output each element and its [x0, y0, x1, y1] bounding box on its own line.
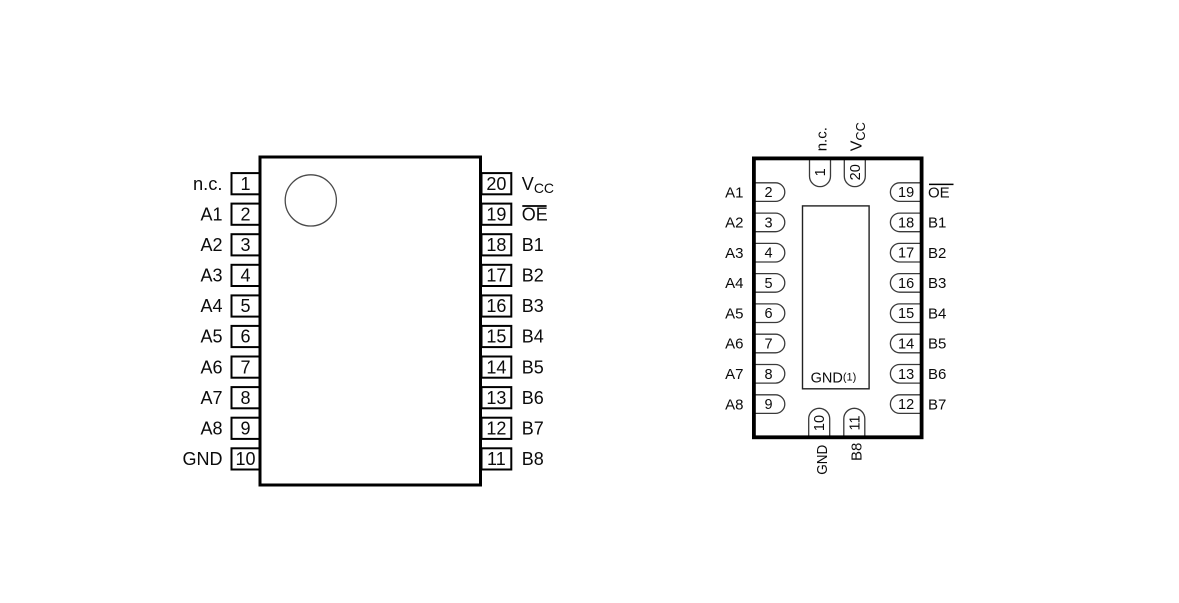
svg-text:OE: OE: [522, 204, 548, 224]
svg-text:A1: A1: [200, 204, 222, 224]
svg-text:B3: B3: [522, 296, 544, 316]
svg-text:7: 7: [240, 357, 250, 377]
svg-text:7: 7: [765, 337, 773, 353]
svg-text:A5: A5: [725, 305, 743, 322]
svg-text:B1: B1: [522, 235, 544, 255]
svg-text:20: 20: [848, 164, 864, 180]
svg-text:11: 11: [487, 449, 506, 469]
svg-text:A7: A7: [725, 366, 743, 383]
svg-text:3: 3: [240, 235, 250, 255]
svg-text:16: 16: [486, 296, 506, 316]
svg-text:A7: A7: [200, 388, 222, 408]
svg-text:A4: A4: [725, 275, 743, 292]
svg-text:12: 12: [486, 419, 506, 439]
svg-text:B6: B6: [522, 388, 544, 408]
svg-text:A3: A3: [200, 266, 222, 286]
svg-text:B4: B4: [928, 305, 946, 322]
svg-text:OE: OE: [928, 184, 950, 201]
svg-text:B2: B2: [522, 266, 544, 286]
svg-text:A2: A2: [725, 215, 743, 232]
svg-text:16: 16: [898, 276, 914, 292]
svg-text:4: 4: [240, 266, 250, 286]
svg-text:B2: B2: [928, 245, 946, 262]
svg-text:14: 14: [486, 357, 506, 377]
svg-text:19: 19: [486, 204, 506, 224]
svg-text:9: 9: [765, 397, 773, 413]
svg-text:B4: B4: [522, 327, 544, 347]
svg-text:B5: B5: [522, 357, 544, 377]
svg-text:6: 6: [240, 327, 250, 347]
svg-text:18: 18: [486, 235, 506, 255]
svg-text:A6: A6: [200, 357, 222, 377]
svg-text:10: 10: [235, 449, 255, 469]
svg-text:15: 15: [898, 306, 914, 322]
svg-text:VCC: VCC: [849, 122, 869, 151]
svg-text:4: 4: [765, 246, 773, 262]
svg-text:A3: A3: [725, 245, 743, 262]
svg-text:8: 8: [765, 367, 773, 383]
svg-text:B6: B6: [928, 366, 946, 383]
svg-text:19: 19: [898, 185, 914, 201]
svg-text:A8: A8: [200, 419, 222, 439]
svg-text:13: 13: [486, 388, 506, 408]
svg-text:1: 1: [240, 174, 250, 194]
svg-text:B1: B1: [928, 215, 946, 232]
svg-text:A1: A1: [725, 184, 743, 201]
svg-text:n.c.: n.c.: [193, 174, 223, 194]
svg-text:B5: B5: [928, 336, 946, 353]
svg-text:VCC: VCC: [522, 174, 554, 196]
svg-text:GND: GND: [814, 445, 831, 475]
svg-text:5: 5: [240, 296, 250, 316]
svg-text:9: 9: [240, 419, 250, 439]
svg-text:17: 17: [486, 266, 506, 286]
svg-text:B7: B7: [522, 419, 544, 439]
svg-text:1: 1: [813, 168, 829, 176]
svg-text:2: 2: [240, 204, 250, 224]
svg-text:B3: B3: [928, 275, 946, 292]
svg-text:8: 8: [240, 388, 250, 408]
svg-text:13: 13: [898, 367, 914, 383]
svg-text:n.c.: n.c.: [813, 127, 830, 151]
svg-text:12: 12: [898, 397, 914, 413]
svg-text:A5: A5: [200, 327, 222, 347]
svg-text:6: 6: [765, 306, 773, 322]
svg-text:10: 10: [812, 415, 828, 431]
svg-text:20: 20: [486, 174, 506, 194]
svg-text:A8: A8: [725, 396, 743, 413]
svg-text:14: 14: [898, 337, 914, 353]
svg-text:A6: A6: [725, 336, 743, 353]
svg-text:5: 5: [765, 276, 773, 292]
svg-text:B7: B7: [928, 396, 946, 413]
svg-text:17: 17: [898, 246, 914, 262]
svg-text:B8: B8: [848, 443, 865, 461]
svg-text:11: 11: [847, 415, 863, 430]
svg-text:15: 15: [486, 327, 506, 347]
svg-text:A2: A2: [200, 235, 222, 255]
svg-text:A4: A4: [200, 296, 222, 316]
svg-text:GND: GND: [183, 449, 223, 469]
svg-text:2: 2: [765, 185, 773, 201]
svg-text:3: 3: [765, 215, 773, 231]
svg-text:18: 18: [898, 215, 914, 231]
svg-text:B8: B8: [522, 449, 544, 469]
